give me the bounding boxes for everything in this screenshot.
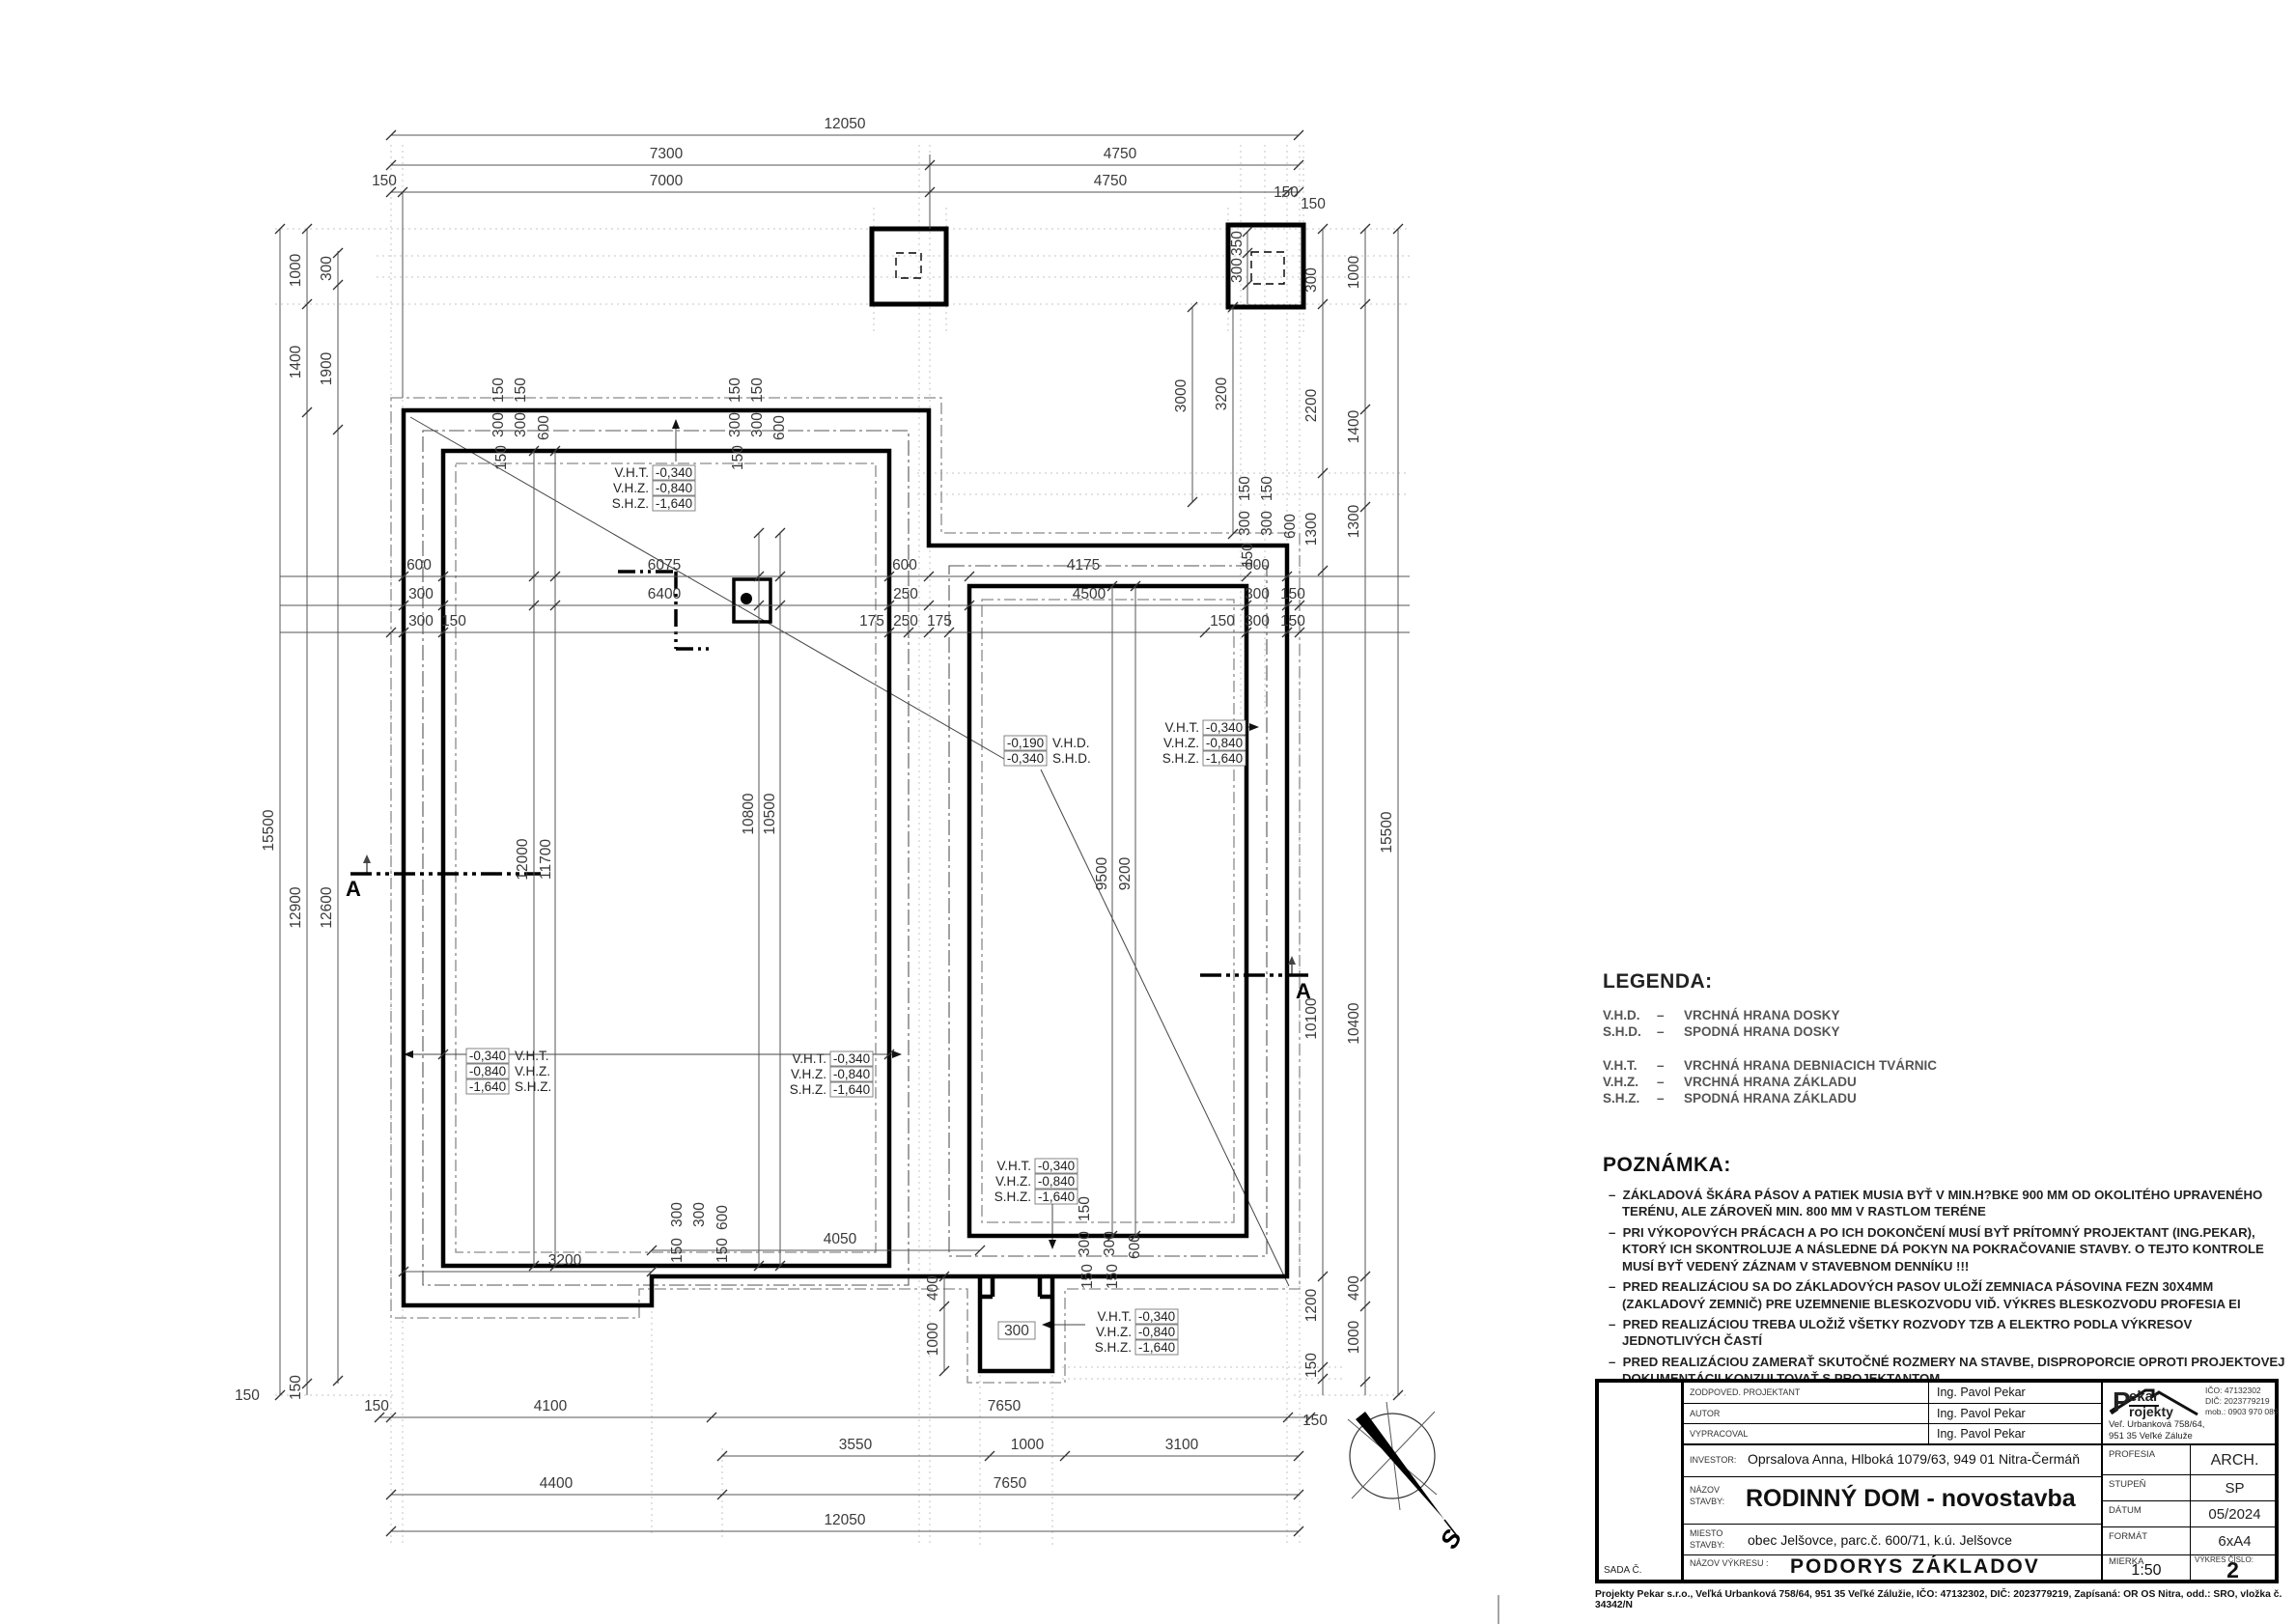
dim-label: 400 [925,1275,941,1301]
level-key: V.H.Z. [515,1064,550,1078]
logo-name-bottom: rojekty [2129,1404,2173,1419]
drawing-name: PODORYS ZÁKLADOV [1790,1555,2040,1579]
dimension-lines [280,135,1410,1531]
dim-label: 1300 [1346,504,1362,538]
dimension-texts: 1205073004750150700047501501501550010001… [235,116,1395,1528]
dim-label: 600 [1282,514,1299,539]
dim-label: 300 [1259,511,1275,536]
level-key: V.H.T. [1097,1309,1132,1324]
dim-label: 1400 [288,345,304,378]
level-key: V.H.Z. [1096,1325,1132,1339]
notes-title: POZNÁMKA: [1603,1154,2290,1177]
level-value: -0,840 [656,481,692,495]
dim-label: 150 [1077,1196,1093,1221]
dim-label: 150 [1237,476,1253,501]
dim-label: 15500 [261,809,277,851]
dim-label: 150 [372,173,397,189]
dim-label: 7650 [994,1475,1027,1492]
dim-label: 1900 [319,351,335,385]
dim-label: 150 [1105,1264,1121,1289]
level-key: V.H.D. [1052,736,1090,750]
dim-label: A [1296,979,1311,1003]
dim-label: 7650 [988,1398,1022,1414]
project-name-row: NÁZOV STAVBY: RODINNÝ DOM - novostavba [1684,1477,2101,1525]
dim-label: 4050 [824,1231,857,1247]
profession-value-cell: ARCH. [2190,1445,2279,1475]
dim-label: 150 [727,378,743,403]
dim-label: 150 [493,445,510,470]
dim-label: 4750 [1104,146,1137,162]
north-compass: S [1348,1402,1468,1554]
level-value: -1,640 [833,1082,870,1097]
level-value: -0,840 [469,1064,506,1078]
dim-label: 3200 [548,1252,582,1269]
level-value: -0,840 [833,1067,870,1081]
section-line-a [350,854,1311,975]
dim-label: 10100 [1303,997,1320,1039]
dim-label: 600 [892,557,917,574]
pier-left-core [896,253,921,278]
pier-left [872,229,946,304]
level-key: V.H.T. [792,1051,826,1066]
dim-label: 150 [669,1238,686,1263]
drain-box [734,579,770,622]
level-key: S.H.Z. [994,1190,1031,1204]
level-value: -0,340 [1138,1309,1175,1324]
dim-label: 150 [1274,184,1299,201]
dim-label: 300 [1245,586,1270,602]
dim-label: 4175 [1067,557,1100,574]
dim-label: 150 [1259,476,1275,501]
level-key: V.H.Z. [791,1067,826,1081]
dim-label: 300 [319,256,335,281]
level-value: -1,640 [1038,1190,1075,1204]
level-label-blocks: V.H.T.-0,340V.H.Z.-0,840S.H.Z.-1,640-0,1… [466,465,1246,1355]
dim-label: 1000 [1346,1320,1362,1354]
level-key: V.H.Z. [995,1174,1031,1189]
dim-label: 1000 [288,253,304,287]
level-value: -1,640 [656,496,692,511]
dim-label: 10800 [741,793,757,834]
dim-label: 150 [749,378,766,403]
dim-label: 7300 [650,146,684,162]
dim-label: 150 [1303,1353,1320,1378]
dim-label: 1000 [925,1322,941,1356]
dim-label: 300 [1102,1231,1118,1256]
dim-label: 300 [749,412,766,437]
dim-label: 400 [1346,1275,1362,1301]
level-value: -1,640 [469,1079,506,1094]
level-key: S.H.Z. [790,1082,826,1097]
author-row: AUTOR [1684,1404,1929,1425]
note-item: – PRED REALIZÁCIOU SA DO ZÁKLADOVÝCH PAS… [1603,1278,2290,1312]
dim-label: 300 [691,1202,708,1227]
dim-label: 12050 [824,116,865,132]
legend-item: S.H.Z. – SPODNÁ HRANA ZÁKLADU [1603,1090,2221,1106]
dim-label: 300 [727,412,743,437]
drawing-number: 2 [2191,1557,2275,1583]
dim-label: 12000 [515,838,531,880]
dim-label: 9200 [1117,856,1134,890]
dim-label: 9500 [1094,856,1110,890]
legend-item: V.H.T. – VRCHNÁ HRANA DEBNIACICH TVÁRNIC [1603,1057,2221,1074]
dim-label: 150 [288,1375,304,1400]
drawing-sheet: 1205073004750150700047501501501550010001… [0,0,2296,1624]
dim-label: 150 [1302,1413,1328,1429]
stage-value-cell: SP [2190,1475,2279,1501]
level-value: -0,340 [1206,720,1243,735]
dim-label: 300 [1077,1231,1093,1256]
dim-label: 3200 [1214,377,1230,410]
investor-row: INVESTOR: Oprsalova Anna, Hlboká 1079/63… [1684,1445,2101,1477]
dim-label: 2200 [1303,388,1320,422]
level-key: S.H.Z. [515,1079,551,1094]
note-item: – PRED REALIZÁCIOU TREBA ULOŽIŽ VŠETKY R… [1603,1316,2290,1350]
level-value: -0,340 [833,1051,870,1066]
dim-label: 10400 [1346,1002,1362,1044]
dim-label: 12600 [319,886,335,928]
dim-label: 300 [1245,613,1270,630]
drafted-by-row: VYPRACOVAL [1684,1424,1929,1445]
level-value: -1,640 [1206,751,1243,766]
dim-label: 150 [714,1238,731,1263]
level-key: S.H.D. [1052,751,1091,766]
format-label-cell: FORMÁT [2101,1527,2190,1555]
dim-label: 1300 [1303,512,1320,546]
level-value: -0,840 [1038,1174,1075,1189]
level-key: V.H.T. [515,1049,549,1063]
level-value: -0,840 [1206,736,1243,750]
stage-label-cell: STUPEŇ [2101,1475,2190,1501]
dim-label: 6075 [648,557,681,574]
dim-label: 150 [1240,543,1256,568]
level-key: S.H.Z. [1162,751,1199,766]
dim-label: 7000 [650,173,684,189]
dim-label: 600 [1127,1234,1143,1259]
dim-label: 1400 [1346,409,1362,443]
dim-label: 600 [536,415,552,440]
dim-label: 1000 [1346,255,1362,289]
drain-dot [741,593,752,604]
foundation-walls [404,225,1303,1371]
interior-footing-marks [618,572,710,649]
dim-label: 150 [1210,613,1235,630]
level-key: S.H.Z. [1095,1340,1132,1355]
dim-label: 300 [1237,511,1253,536]
legend-title: LEGENDA: [1603,970,2221,994]
dim-label: 6400 [648,586,682,602]
dim-label: 175 [927,613,952,630]
dim-label: 3100 [1165,1437,1199,1453]
dim-label: 600 [406,557,432,574]
legend: LEGENDA: V.H.D. – VRCHNÁ HRANA DOSKY S.H… [1603,970,2221,1106]
dim-label: 300 [408,586,434,602]
legend-item: V.H.Z. – VRCHNÁ HRANA ZÁKLADU [1603,1074,2221,1090]
note-item: – ZÁKLADOVÁ ŠKÁRA PÁSOV A PATIEK MUSIA B… [1603,1187,2290,1220]
format-value-cell: 6xA4 [2190,1527,2279,1555]
dim-label: 10500 [762,793,778,834]
dim-label: 300 [669,1202,686,1227]
dim-label: 250 [893,613,918,630]
level-value: -0,340 [1007,751,1044,766]
company-logo-box: P ekar rojekty IČO: 47132302 DIČ: 202377… [2101,1383,2279,1445]
date-value-cell: 05/2024 [2190,1501,2279,1527]
dim-label: 15500 [1379,811,1395,853]
dim-label: 175 [859,613,884,630]
dim-label: 300 [1229,258,1246,283]
set-number-cell: SADA Č. [1599,1383,1684,1580]
note-item: – PRI VÝKOPOVÝCH PRÁCACH A PO ICH DOKONČ… [1603,1224,2290,1274]
dim-label: 300 [1303,267,1320,293]
legend-item: V.H.D. – VRCHNÁ HRANA DOSKY [1603,1007,2221,1023]
drawing-number-cell: VÝKRES ČÍSLO: 2 [2190,1555,2275,1580]
dim-label: 150 [441,613,466,630]
level-key: V.H.Z. [613,481,649,495]
title-block: SADA Č. ZODPOVED. PROJEKTANT Ing. Pavol … [1595,1379,2279,1583]
dim-label: 4400 [540,1475,574,1492]
level-value: -0,340 [469,1049,506,1063]
dim-label: 12050 [824,1512,865,1528]
pier-right-core [1251,252,1284,284]
dim-label: 12900 [288,886,304,928]
dim-label: 150 [364,1398,389,1414]
dim-label: 150 [490,378,507,403]
dim-label: A [346,877,361,901]
project-name: RODINNÝ DOM - novostavba [1746,1485,2076,1513]
dim-label: 300 [490,412,507,437]
level-value: -0,840 [1138,1325,1175,1339]
drawing-name-row: NÁZOV VÝKRESU : PODORYS ZÁKLADOV [1684,1555,2101,1580]
level-key: V.H.T. [996,1159,1031,1173]
level-key: V.H.T. [1164,720,1199,735]
dim-label: 250 [893,586,918,602]
dim-label: 150 [1301,196,1326,212]
scale-cell: MIERKA 1:50 [2101,1555,2190,1580]
dim-label: 1000 [1011,1437,1045,1453]
logo-big-p: P [2113,1386,2131,1417]
dim-label: 3550 [839,1437,873,1453]
site-row: MIESTO STAVBY: obec Jelšovce, parc.č. 60… [1684,1525,2101,1555]
dim-label: 600 [771,415,788,440]
dim-label: 3000 [1173,378,1190,412]
level-value: -0,340 [1038,1159,1075,1173]
dim-label: 350 [1229,231,1246,256]
dim-label: 150 [513,378,529,403]
level-value: -1,640 [1138,1340,1175,1355]
dim-label: 150 [730,445,746,470]
dim-label: 150 [1280,613,1305,630]
dim-label: 150 [1079,1264,1096,1289]
dim-label: 4100 [534,1398,568,1414]
dim-label: 4750 [1094,173,1128,189]
legend-item: S.H.D. – SPODNÁ HRANA DOSKY [1603,1023,2221,1040]
dim-label: 300 [1004,1323,1029,1339]
dim-label: 11700 [538,839,554,880]
dim-label: 300 [408,613,434,630]
dim-label: 600 [714,1205,731,1230]
level-key: V.H.Z. [1163,736,1199,750]
dim-label: 4500 [1073,586,1106,602]
compass-needle [1356,1412,1444,1520]
responsible-designer-row: ZODPOVED. PROJEKTANT [1684,1383,1929,1404]
company-registration-footer: Projekty Pekar s.r.o., Veľká Urbanková 7… [1595,1589,2286,1610]
dim-label: 150 [1280,586,1305,602]
level-key: V.H.T. [614,465,649,480]
dim-label: 150 [235,1387,260,1404]
date-label-cell: DÁTUM [2101,1501,2190,1527]
profession-label-cell: PROFESIA [2101,1445,2190,1475]
dim-label: 300 [513,412,529,437]
notes: POZNÁMKA: – ZÁKLADOVÁ ŠKÁRA PÁSOV A PATI… [1603,1154,2290,1406]
level-value: -0,190 [1007,736,1044,750]
level-key: S.H.Z. [612,496,649,511]
dim-label: 1200 [1303,1288,1320,1322]
level-value: -0,340 [656,465,692,480]
